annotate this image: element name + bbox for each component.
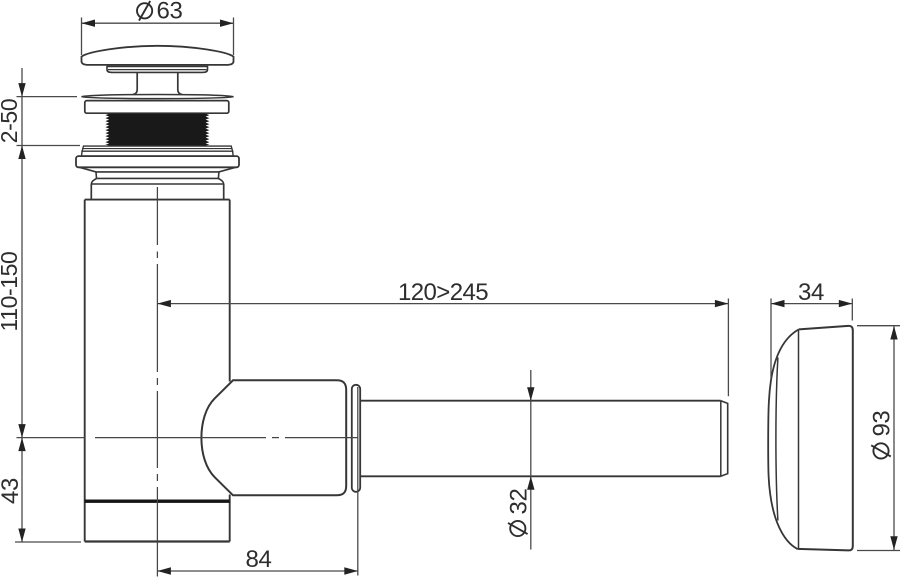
svg-text:2-50: 2-50 bbox=[0, 99, 22, 143]
svg-text:93: 93 bbox=[869, 411, 896, 437]
svg-text:110-150: 110-150 bbox=[0, 252, 22, 332]
svg-text:63: 63 bbox=[157, 0, 183, 25]
svg-text:120>245: 120>245 bbox=[398, 279, 488, 306]
svg-text:84: 84 bbox=[246, 546, 272, 573]
svg-text:43: 43 bbox=[0, 478, 24, 504]
svg-text:34: 34 bbox=[798, 279, 824, 306]
svg-text:32: 32 bbox=[505, 489, 532, 515]
